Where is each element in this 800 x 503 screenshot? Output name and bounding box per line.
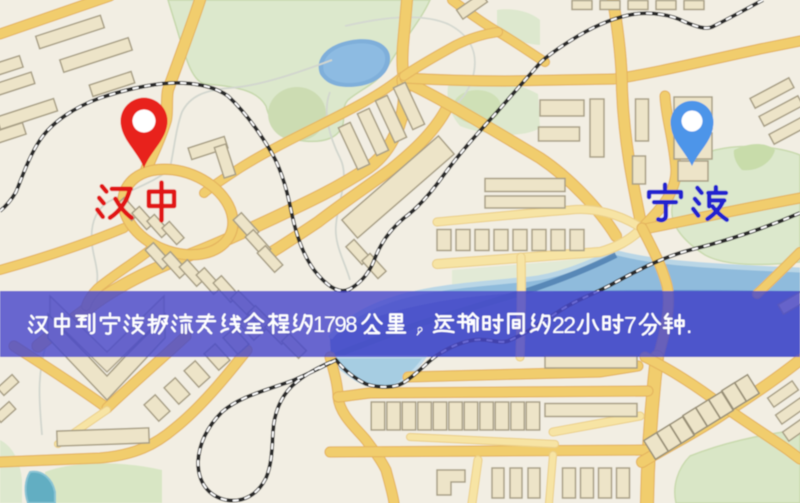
svg-text:1798: 1798: [313, 312, 357, 337]
svg-text:22: 22: [552, 312, 575, 338]
svg-text:7: 7: [624, 312, 637, 338]
svg-text:.: .: [686, 312, 692, 338]
